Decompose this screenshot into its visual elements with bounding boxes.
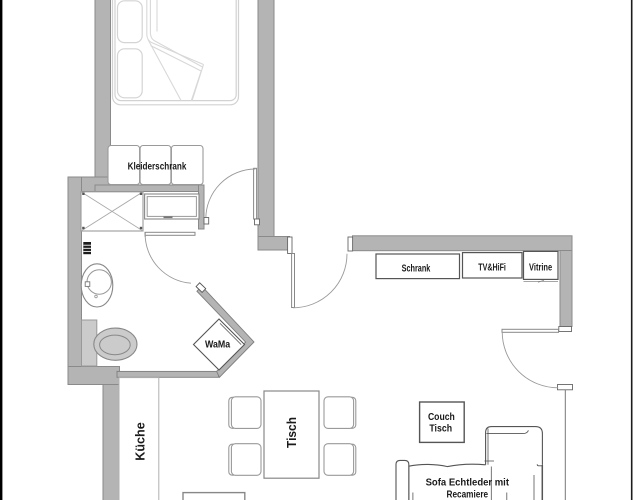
- svg-text:Sofa Echtleder mit: Sofa Echtleder mit: [426, 477, 510, 489]
- svg-text:Vitrine: Vitrine: [529, 262, 552, 274]
- svg-text:Küche: Küche: [133, 422, 148, 461]
- svg-text:Recamiere: Recamiere: [447, 488, 489, 500]
- svg-text:TV&HiFi: TV&HiFi: [478, 262, 506, 274]
- svg-text:WaMa: WaMa: [205, 338, 230, 350]
- svg-text:Schrank: Schrank: [402, 262, 431, 274]
- svg-text:Couch: Couch: [428, 411, 455, 423]
- svg-text:Tisch: Tisch: [284, 417, 299, 448]
- svg-text:Kleiderschrank: Kleiderschrank: [128, 161, 187, 173]
- svg-text:Tisch: Tisch: [429, 423, 452, 435]
